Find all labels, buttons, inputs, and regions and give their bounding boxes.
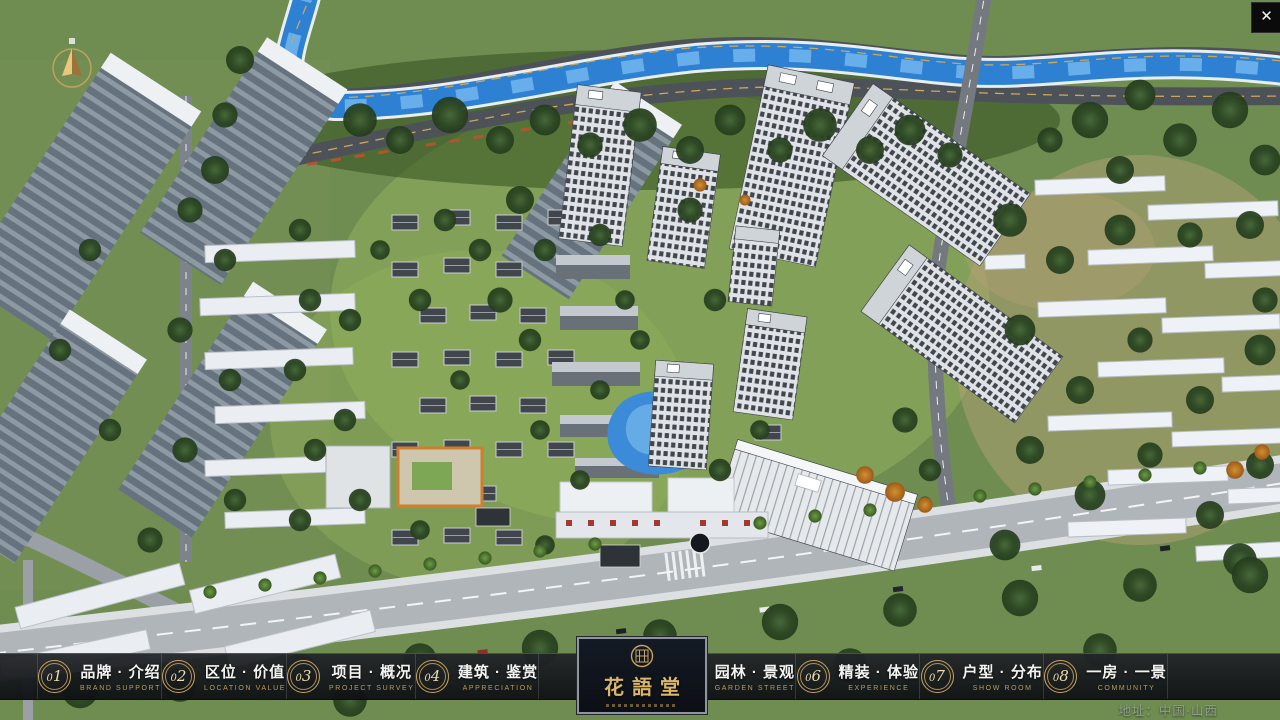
nav-label: 建筑 · 鉴赏 [458,661,538,682]
nav-subtitle: APPRECIATION [463,685,534,692]
seal-icon [630,644,654,668]
nav-label: 品牌 · 介绍 [80,661,160,682]
nav-label: 一房 · 一景 [1086,661,1166,682]
nav-item-architecture[interactable]: 04 建筑 · 鉴赏 APPRECIATION [415,654,539,699]
compass-north-indicator [44,36,100,96]
project-logo-title: 花語堂 [604,671,688,700]
nav-subtitle: PROJECT SURVEY [329,685,415,692]
nav-medallion: 02 [162,660,195,693]
nav-medallion: 08 [1044,660,1077,693]
nav-item-unit-layout[interactable]: 07 户型 · 分布 SHOW ROOM [919,654,1043,699]
project-logo-panel[interactable]: 花語堂 [577,637,707,714]
nav-subtitle: EXPERIENCE [848,685,909,692]
nav-subtitle: COMMUNITY [1098,685,1156,692]
logo-tagline [606,704,678,707]
nav-number: 04 [424,669,440,684]
nav-item-fine-decoration[interactable]: 06 精装 · 体验 EXPERIENCE [795,654,919,699]
close-button[interactable]: ✕ [1251,2,1280,33]
nav-label: 项目 · 概况 [332,661,412,682]
nav-number: 08 [1053,669,1069,684]
project-address: 地址：中国·山西 [1118,700,1218,719]
nav-label: 区位 · 价值 [205,661,285,682]
nav-medallion: 07 [921,660,954,693]
nav-subtitle: LOCATION VALUE [204,685,286,692]
app-window: { "window": { "close_glyph": "✕" }, "nav… [0,0,1280,720]
nav-spacer-right [1167,654,1280,699]
nav-item-project-survey[interactable]: 03 项目 · 概况 PROJECT SURVEY [286,654,415,699]
nav-number: 07 [929,669,945,684]
nav-number: 02 [171,669,187,684]
compass-icon [44,36,100,96]
site-plan-render [0,0,1280,720]
nav-medallion: 01 [38,660,71,693]
nav-subtitle: GARDEN STREET [715,685,795,692]
nav-medallion: 03 [287,660,320,693]
close-icon: ✕ [1260,8,1273,25]
nav-label: 精装 · 体验 [839,661,919,682]
nav-item-location-value[interactable]: 02 区位 · 价值 LOCATION VALUE [161,654,286,699]
nav-medallion: 04 [416,660,449,693]
nav-number: 01 [47,669,63,684]
nav-number: 06 [805,669,821,684]
nav-number: 03 [296,669,312,684]
nav-item-room-view[interactable]: 08 一房 · 一景 COMMUNITY [1043,654,1167,699]
nav-subtitle: SHOW ROOM [973,685,1033,692]
nav-label: 户型 · 分布 [963,661,1043,682]
nav-spacer-left [0,654,37,699]
nav-medallion: 06 [797,660,830,693]
nav-item-brand-intro[interactable]: 01 品牌 · 介绍 BRAND SUPPORT [37,654,161,699]
nav-label: 园林 · 景观 [715,661,795,682]
nav-subtitle: BRAND SUPPORT [80,685,161,692]
